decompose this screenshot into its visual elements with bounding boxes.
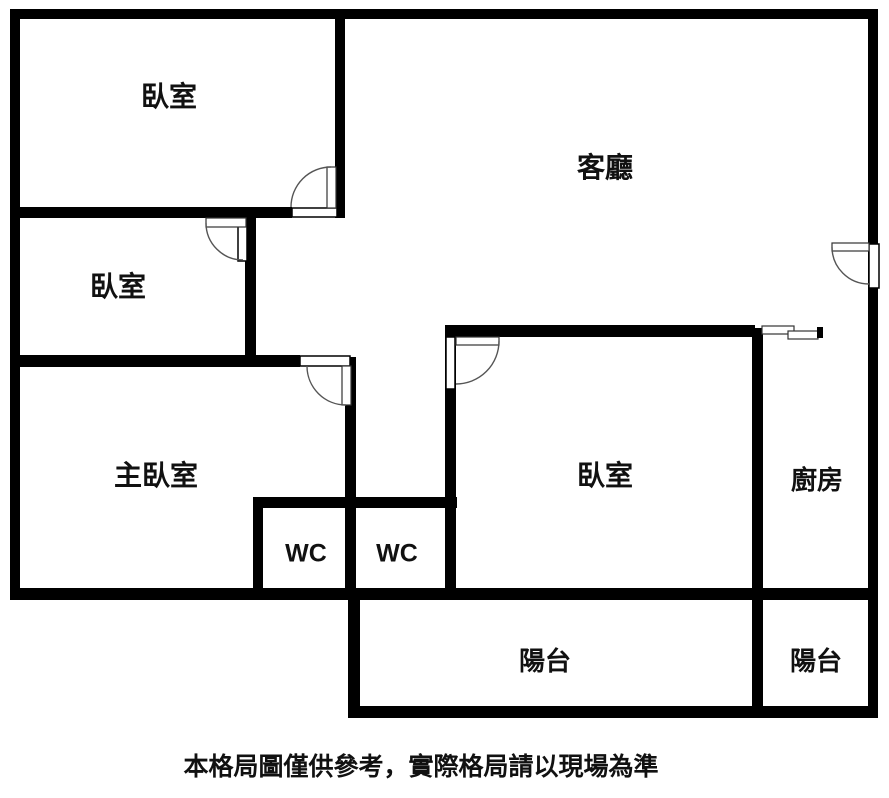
door-leaf xyxy=(206,218,246,227)
door-swing-arc xyxy=(832,247,869,284)
wall-mid-bottom xyxy=(10,588,878,600)
room-label-wc-2: WC xyxy=(376,542,418,567)
floorplan-drawing xyxy=(0,0,889,798)
wall-left xyxy=(10,9,20,600)
disclaimer-caption: 本格局圖僅供參考，實際格局請以現場為準 xyxy=(183,755,658,780)
interior-walls xyxy=(10,9,763,718)
door-leaf xyxy=(342,366,351,405)
room-label-bedroom-mid-left: 臥室 xyxy=(90,273,146,301)
room-label-bedroom-top-left: 臥室 xyxy=(141,83,197,111)
door-swing-arc xyxy=(291,167,331,207)
room-label-wc-1: WC xyxy=(285,542,327,567)
door-sill xyxy=(300,356,350,366)
wall-wc1-left xyxy=(253,497,263,600)
sliding-door-jamb xyxy=(817,327,823,338)
door-sill xyxy=(292,208,337,217)
room-label-master-bedroom: 主臥室 xyxy=(114,462,198,490)
room-label-balcony-kitchen: 陽台 xyxy=(790,648,842,674)
entry-door xyxy=(832,243,879,288)
door-swing-arc xyxy=(307,366,346,405)
door-sill xyxy=(446,337,455,389)
door-leaf xyxy=(832,243,869,251)
room-label-kitchen: 廚房 xyxy=(791,467,843,493)
wall-bedroom3-top xyxy=(445,325,755,337)
wall-wc-top xyxy=(253,497,457,508)
wall-balcony-bottom xyxy=(348,706,878,718)
floorplan: 臥室 客廳 臥室 主臥室 臥室 廚房 WC WC 陽台 陽台 本格局圖僅供參考，… xyxy=(0,0,889,798)
wall-master-top xyxy=(10,355,300,367)
sliding-door-kitchen xyxy=(762,326,823,339)
door-bedroom-mid-left xyxy=(206,218,247,261)
door-swing-arc xyxy=(456,341,499,384)
wall-balcony-left xyxy=(348,588,360,718)
room-label-living-room: 客廳 xyxy=(577,154,633,182)
door-leaf xyxy=(456,337,499,345)
room-label-bedroom-right: 臥室 xyxy=(577,462,633,490)
door-sill xyxy=(869,244,879,288)
sliding-panel-2 xyxy=(788,331,818,339)
door-leaf xyxy=(327,167,336,208)
room-label-balcony-main: 陽台 xyxy=(519,648,571,674)
wall-kitchen-left xyxy=(752,328,763,718)
door-master-bedroom xyxy=(300,356,351,405)
wall-top xyxy=(10,9,878,19)
door-bedroom-right xyxy=(446,337,499,389)
wall-right xyxy=(868,9,878,718)
door-bedroom-top-left xyxy=(291,167,337,217)
